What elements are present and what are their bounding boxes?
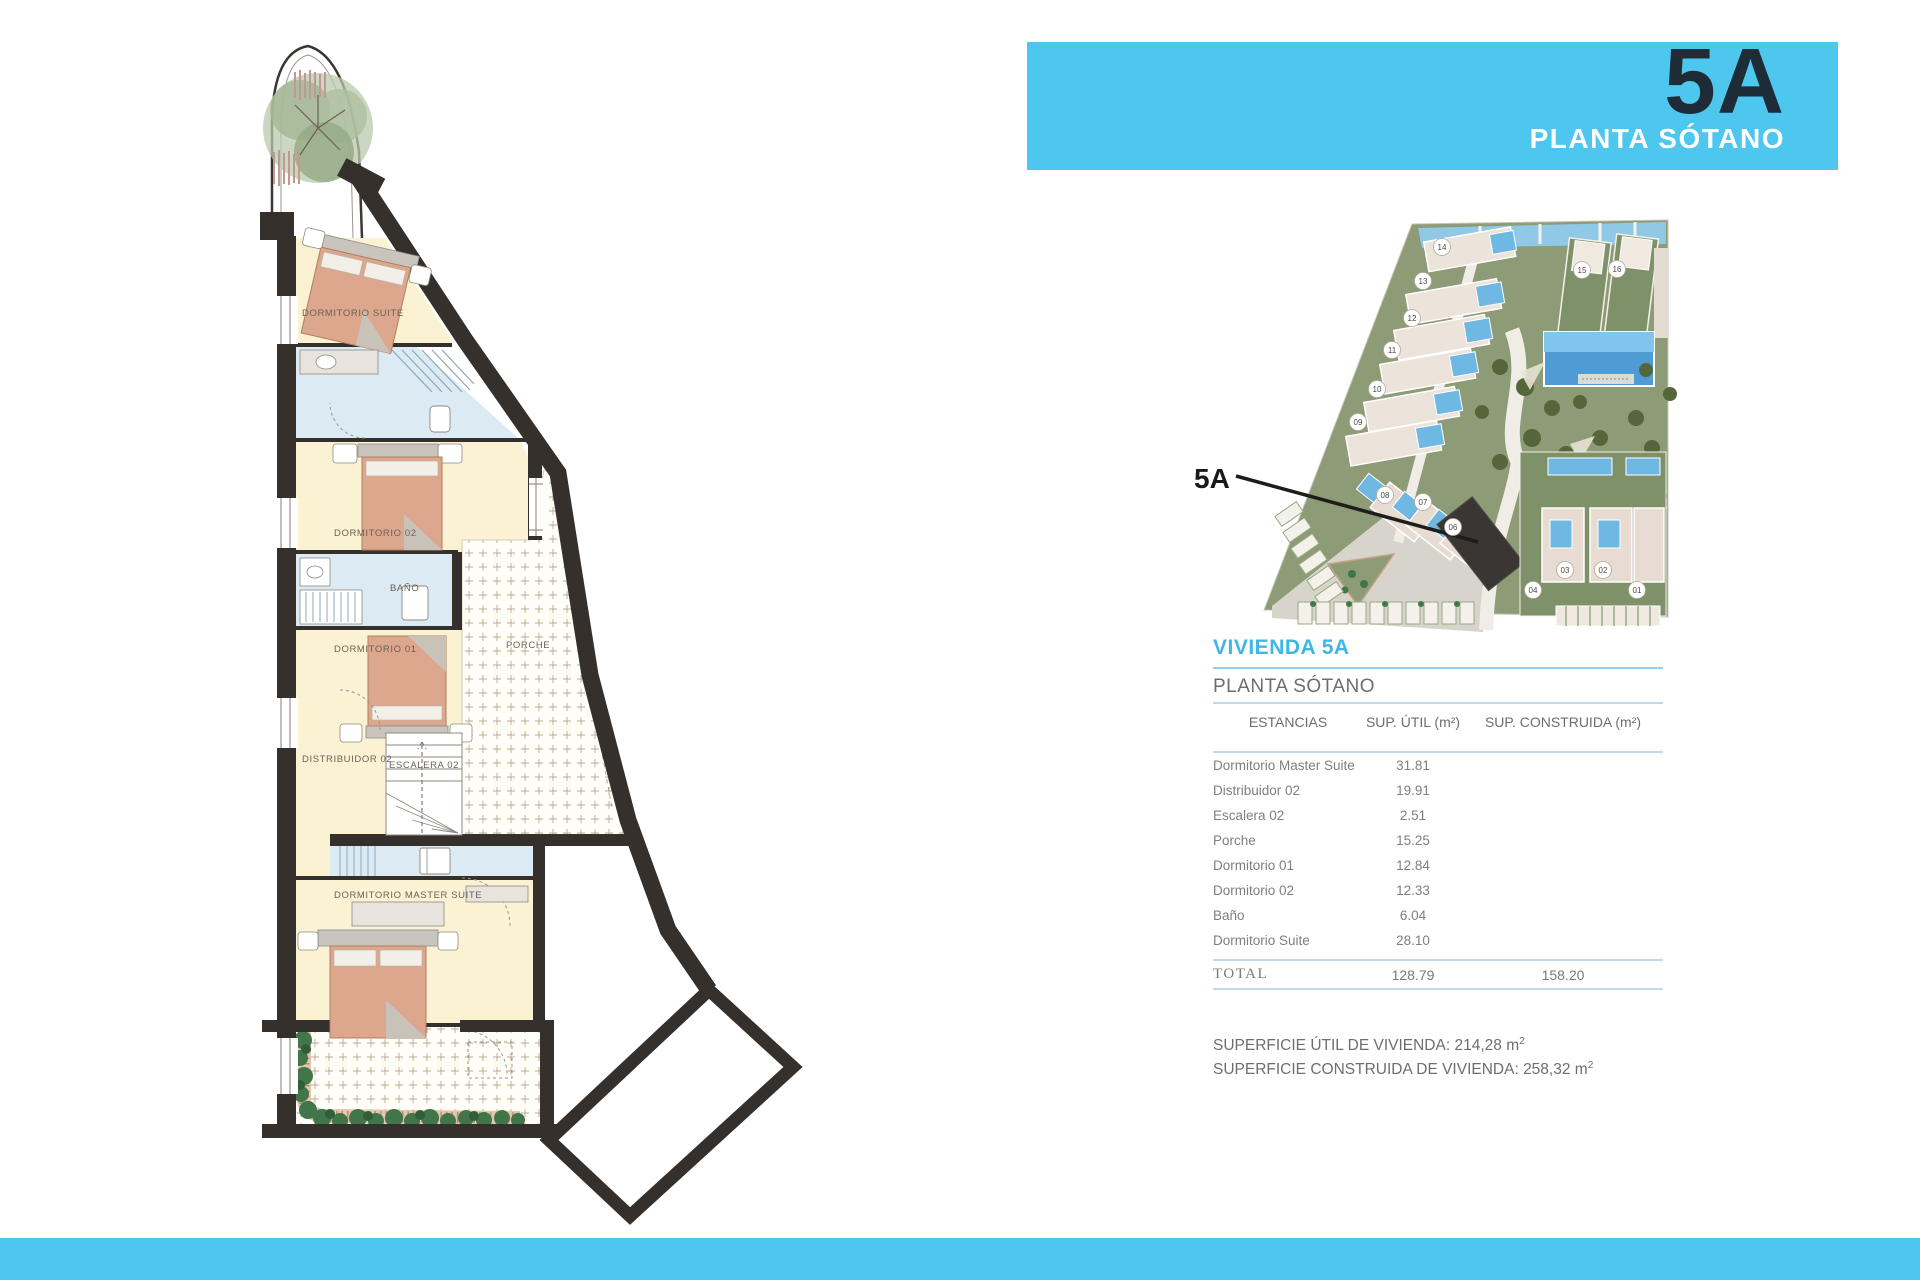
unit-code: 5A xyxy=(1664,36,1785,127)
table-row: Porche15.25 xyxy=(1213,828,1663,853)
areas-table: Dormitorio Master Suite31.81Distribuidor… xyxy=(1213,753,1663,953)
total-util: 128.79 xyxy=(1363,967,1463,983)
table-row: Escalera 022.51 xyxy=(1213,803,1663,828)
svg-text:08: 08 xyxy=(1381,491,1390,500)
svg-text:01: 01 xyxy=(1633,586,1642,595)
table-row: Distribuidor 0219.91 xyxy=(1213,778,1663,803)
site-unit-badge: 10 xyxy=(1369,381,1386,398)
info-panel: VIVIENDA 5A PLANTA SÓTANO ESTANCIAS SUP.… xyxy=(1213,636,1665,1106)
site-unit-badge: 02 xyxy=(1595,562,1612,579)
site-plan: 5A 010203040607080910111213141516 xyxy=(1180,212,1725,642)
site-unit-badge: 11 xyxy=(1384,342,1401,359)
col-header-sup-util: SUP. ÚTIL (m²) xyxy=(1363,714,1463,730)
room-label: DISTRIBUIDOR 02 xyxy=(302,754,392,765)
site-unit-badge: 16 xyxy=(1609,261,1626,278)
svg-text:15: 15 xyxy=(1578,266,1587,275)
site-unit-badge: 01 xyxy=(1629,582,1646,599)
total-construida: 158.20 xyxy=(1463,967,1663,983)
site-unit-badge: 04 xyxy=(1525,582,1542,599)
room-sup-util: 19.91 xyxy=(1363,783,1463,798)
room-sup-util: 2.51 xyxy=(1363,808,1463,823)
total-row: TOTAL 128.79 158.20 xyxy=(1213,961,1663,988)
room-label: BAÑO xyxy=(390,583,419,594)
room-label: DORMITORIO MASTER SUITE xyxy=(334,890,482,901)
table-row: Dormitorio Master Suite31.81 xyxy=(1213,753,1663,778)
col-header-estancias: ESTANCIAS xyxy=(1213,714,1363,730)
room-label: ESCALERA 02 xyxy=(389,760,459,771)
room-sup-util: 28.10 xyxy=(1363,933,1463,948)
room-name: Baño xyxy=(1213,906,1363,926)
site-unit-badge: 14 xyxy=(1434,239,1451,256)
svg-text:10: 10 xyxy=(1373,385,1382,394)
svg-text:11: 11 xyxy=(1388,346,1397,355)
summary-construida: SUPERFICIE CONSTRUIDA DE VIVIENDA: 258,3… xyxy=(1213,1056,1593,1080)
floor-plan: DORMITORIO SUITEDORMITORIO 02BAÑODORMITO… xyxy=(250,35,890,1240)
surface-summary: SUPERFICIE ÚTIL DE VIVIENDA: 214,28 m2 S… xyxy=(1213,1032,1593,1080)
room-sup-util: 15.25 xyxy=(1363,833,1463,848)
total-label: TOTAL xyxy=(1213,966,1363,983)
room-label: DORMITORIO 01 xyxy=(334,644,417,655)
room-label: DORMITORIO 02 xyxy=(334,528,417,539)
svg-text:13: 13 xyxy=(1419,277,1428,286)
site-unit-badge: 13 xyxy=(1415,273,1432,290)
site-unit-badge: 15 xyxy=(1574,262,1591,279)
svg-text:07: 07 xyxy=(1419,498,1428,507)
col-header-sup-construida: SUP. CONSTRUIDA (m²) xyxy=(1463,714,1663,730)
svg-text:16: 16 xyxy=(1613,265,1622,274)
villas-bottom-right xyxy=(1520,452,1666,626)
garden-area xyxy=(292,1027,542,1129)
svg-text:14: 14 xyxy=(1438,243,1447,252)
floor-name: PLANTA SÓTANO xyxy=(1530,123,1785,155)
room-label: PORCHE xyxy=(506,640,550,651)
panel-subtitle: PLANTA SÓTANO xyxy=(1213,676,1375,698)
table-row: Dormitorio Suite28.10 xyxy=(1213,928,1663,953)
room-sup-util: 12.33 xyxy=(1363,883,1463,898)
svg-text:06: 06 xyxy=(1449,523,1458,532)
basement-ramp-structure xyxy=(549,990,793,1216)
table-header: ESTANCIAS SUP. ÚTIL (m²) SUP. CONSTRUIDA… xyxy=(1213,714,1663,730)
room-name: Dormitorio 02 xyxy=(1213,881,1363,901)
room-label: DORMITORIO SUITE xyxy=(302,308,404,319)
room-sup-util: 31.81 xyxy=(1363,758,1463,773)
table-row: Dormitorio 0112.84 xyxy=(1213,853,1663,878)
room-name: Dormitorio Master Suite xyxy=(1213,756,1363,776)
svg-text:12: 12 xyxy=(1408,314,1417,323)
room-name: Distribuidor 02 xyxy=(1213,781,1363,801)
divider xyxy=(1213,667,1663,669)
svg-text:09: 09 xyxy=(1354,418,1363,427)
divider xyxy=(1213,702,1663,704)
svg-text:04: 04 xyxy=(1529,586,1538,595)
room-name: Escalera 02 xyxy=(1213,806,1363,826)
room-name: Porche xyxy=(1213,831,1363,851)
site-unit-badge: 07 xyxy=(1415,494,1432,511)
summary-util: SUPERFICIE ÚTIL DE VIVIENDA: 214,28 m2 xyxy=(1213,1032,1593,1056)
table-row: Dormitorio 0212.33 xyxy=(1213,878,1663,903)
community-pool xyxy=(1544,332,1654,386)
room-name: Dormitorio 01 xyxy=(1213,856,1363,876)
site-unit-badge: 09 xyxy=(1350,414,1367,431)
site-unit-badge: 06 xyxy=(1445,519,1462,536)
room-sup-util: 12.84 xyxy=(1363,858,1463,873)
room-sup-util: 6.04 xyxy=(1363,908,1463,923)
table-row: Baño6.04 xyxy=(1213,903,1663,928)
svg-text:02: 02 xyxy=(1599,566,1608,575)
site-unit-badge: 03 xyxy=(1557,562,1574,579)
svg-text:03: 03 xyxy=(1561,566,1570,575)
callout-label: 5A xyxy=(1194,463,1230,494)
site-unit-badge: 08 xyxy=(1377,487,1394,504)
divider xyxy=(1213,988,1663,990)
site-unit-badge: 12 xyxy=(1404,310,1421,327)
panel-title: VIVIENDA 5A xyxy=(1213,636,1350,660)
title-banner: 5A PLANTA SÓTANO xyxy=(1027,42,1838,170)
room-name: Dormitorio Suite xyxy=(1213,931,1363,951)
footer-bar xyxy=(0,1238,1920,1280)
